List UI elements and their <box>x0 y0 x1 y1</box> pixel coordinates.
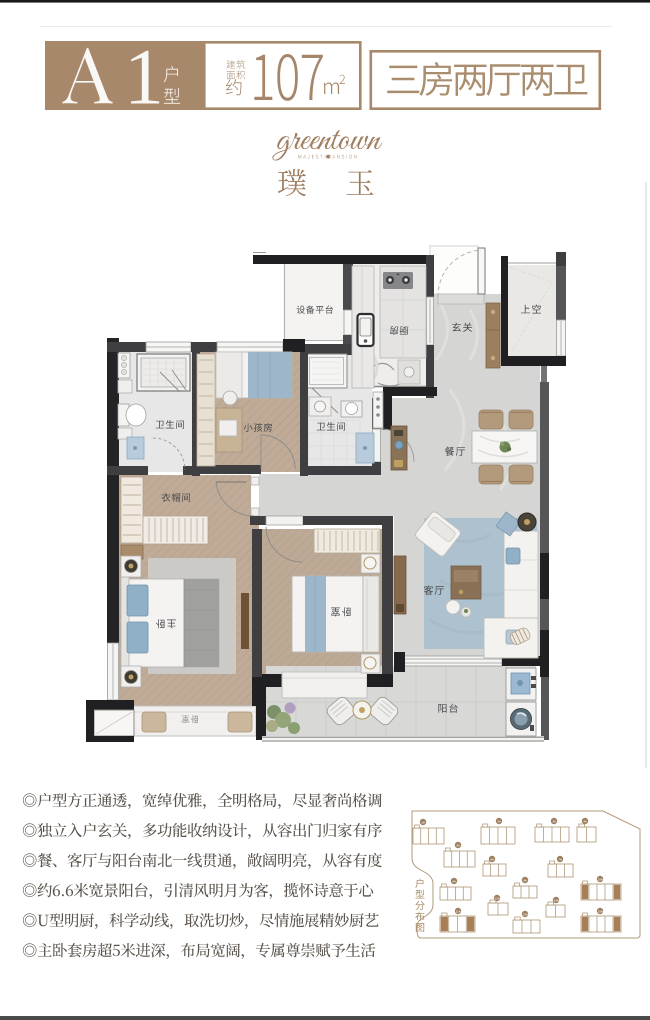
svg-text:15#: 15# <box>597 910 602 914</box>
svg-text:5#: 5# <box>456 844 460 848</box>
svg-text:10#: 10# <box>597 878 602 882</box>
svg-text:11#: 11# <box>456 910 461 914</box>
svg-text:14#: 14# <box>553 899 558 903</box>
svg-text:4#: 4# <box>583 820 587 824</box>
svg-text:8#: 8# <box>452 880 456 884</box>
svg-text:6#: 6# <box>490 858 494 862</box>
svg-text:1#: 1# <box>421 821 425 825</box>
svg-text:7#: 7# <box>558 858 562 862</box>
svg-text:13#: 13# <box>522 913 527 917</box>
svg-text:3#: 3# <box>552 820 556 824</box>
svg-text:9#: 9# <box>523 879 527 883</box>
svg-text:12#: 12# <box>494 897 499 901</box>
svg-text:2#: 2# <box>497 820 501 824</box>
